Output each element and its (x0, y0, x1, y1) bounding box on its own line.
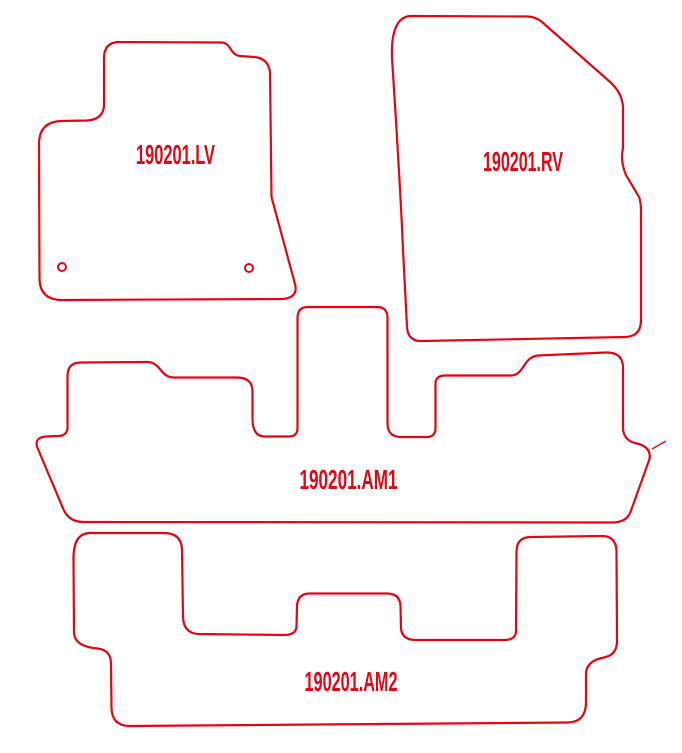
mat-label-front-right: 190201.RV (483, 146, 563, 177)
mat-outline-front-right (392, 16, 641, 341)
pattern-canvas: 190201.LV 190201.RV 190201.AM1 190201.AM… (0, 0, 682, 753)
mat-label-rear-row1: 190201.AM1 (300, 464, 398, 495)
mat-outline-rear-row2 (73, 533, 617, 726)
fixing-hole-right (245, 264, 253, 272)
mat-front-left-group: 190201.LV (39, 42, 296, 300)
mat-front-right-group: 190201.RV (392, 16, 641, 341)
cut-mark (652, 441, 666, 449)
mat-label-rear-row2: 190201.AM2 (305, 666, 398, 697)
floor-mat-pattern-drawing: 190201.LV 190201.RV 190201.AM1 190201.AM… (0, 0, 682, 753)
mat-rear-row2-group: 190201.AM2 (73, 533, 617, 726)
mat-label-front-left: 190201.LV (136, 139, 215, 170)
mat-outline-front-left (39, 42, 296, 300)
mat-rear-row1-group: 190201.AM1 (37, 307, 666, 523)
fixing-hole-left (58, 263, 66, 271)
